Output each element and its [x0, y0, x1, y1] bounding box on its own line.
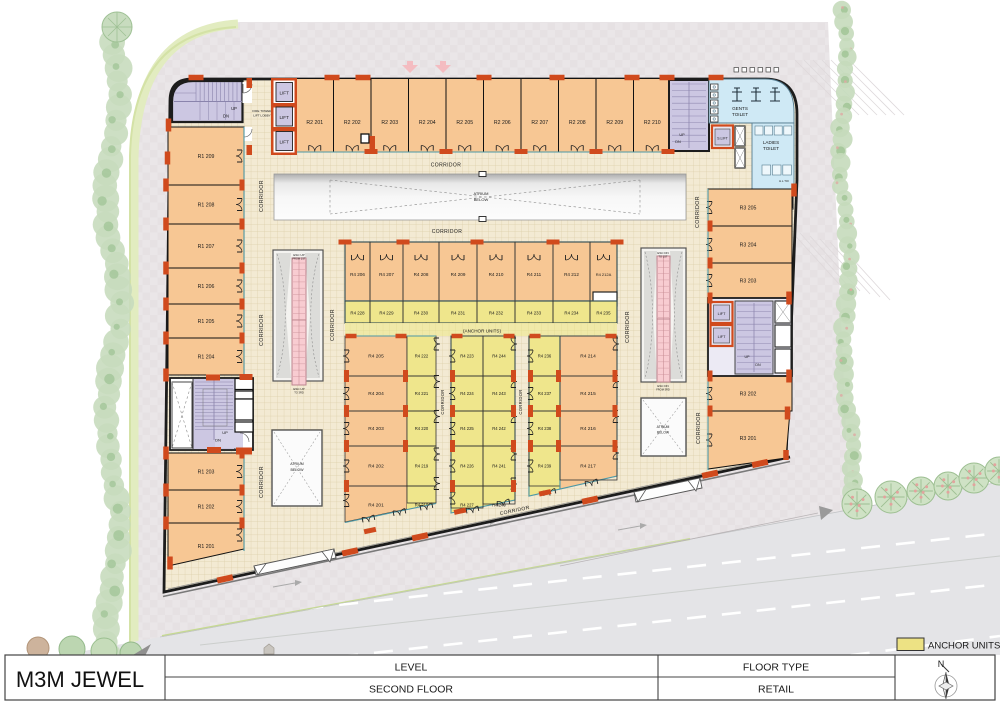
- svg-text:DN: DN: [223, 114, 229, 119]
- svg-text:R4 242: R4 242: [492, 426, 506, 431]
- svg-text:CORRIDOR: CORRIDOR: [431, 163, 461, 169]
- svg-text:TO 3RD: TO 3RD: [294, 390, 304, 394]
- svg-text:DN: DN: [675, 140, 681, 144]
- svg-text:R3 201: R3 201: [740, 436, 757, 442]
- svg-text:LIFT: LIFT: [279, 115, 289, 120]
- svg-text:R2 208: R2 208: [569, 120, 586, 126]
- svg-text:R4 234: R4 234: [564, 311, 579, 316]
- svg-text:LIFT: LIFT: [279, 140, 289, 145]
- svg-text:R4 241: R4 241: [492, 464, 506, 469]
- svg-text:R4 223: R4 223: [460, 354, 474, 359]
- svg-text:R4 228: R4 228: [350, 311, 365, 316]
- svg-text:R4 230: R4 230: [414, 311, 429, 316]
- svg-text:R4 222: R4 222: [415, 354, 429, 359]
- svg-text:R4 227: R4 227: [460, 503, 474, 508]
- svg-text:ATRIUM: ATRIUM: [657, 425, 670, 429]
- svg-text:LIFT: LIFT: [718, 312, 726, 316]
- svg-text:R4 220: R4 220: [415, 426, 429, 431]
- svg-text:CORRIDOR: CORRIDOR: [695, 196, 701, 228]
- svg-text:R2 210: R2 210: [644, 120, 661, 126]
- svg-text:R4 239: R4 239: [538, 464, 552, 469]
- svg-text:R3 202: R3 202: [740, 392, 757, 398]
- svg-text:CORRIDOR: CORRIDOR: [259, 180, 265, 212]
- svg-text:R4 214: R4 214: [580, 354, 596, 360]
- svg-text:R4 224: R4 224: [460, 391, 474, 396]
- svg-text:R4 235: R4 235: [596, 311, 611, 316]
- svg-text:R4 229: R4 229: [379, 311, 394, 316]
- svg-text:R4 221: R4 221: [415, 391, 429, 396]
- svg-text:R1 205: R1 205: [198, 319, 215, 325]
- svg-text:R4 217: R4 217: [580, 464, 596, 470]
- svg-text:UP: UP: [222, 430, 228, 435]
- svg-text:ESC UP: ESC UP: [293, 387, 304, 391]
- svg-text:BELOW: BELOW: [657, 431, 670, 435]
- svg-text:R4 212: R4 212: [564, 272, 579, 277]
- svg-text:CORRIDOR: CORRIDOR: [259, 314, 265, 346]
- svg-text:GENTS: GENTS: [732, 106, 748, 111]
- svg-text:ANCHOR UNITS: ANCHOR UNITS: [928, 641, 1000, 652]
- svg-text:R4 202: R4 202: [368, 464, 384, 470]
- svg-text:FLOOR TYPE: FLOOR TYPE: [743, 662, 809, 674]
- svg-text:BELOW: BELOW: [474, 197, 489, 202]
- svg-text:R2 207: R2 207: [531, 120, 548, 126]
- svg-text:R4 204: R4 204: [368, 391, 384, 397]
- svg-text:R4 211: R4 211: [527, 272, 542, 277]
- svg-text:M3M JEWEL: M3M JEWEL: [16, 667, 144, 692]
- svg-text:R3 204: R3 204: [740, 243, 757, 249]
- svg-text:ATRIUM: ATRIUM: [473, 191, 488, 196]
- svg-text:R4 207: R4 207: [379, 272, 394, 277]
- svg-text:R1 201: R1 201: [198, 544, 215, 550]
- svg-text:TO 1ST: TO 1ST: [658, 254, 667, 258]
- svg-text:R4 236: R4 236: [538, 354, 552, 359]
- svg-text:FROM 3RD: FROM 3RD: [656, 387, 670, 391]
- svg-text:LIFT: LIFT: [279, 91, 289, 96]
- svg-text:R4 203: R4 203: [368, 426, 384, 432]
- svg-text:BELOW: BELOW: [291, 468, 305, 472]
- svg-text:R2 201: R2 201: [306, 120, 323, 126]
- svg-text:TOILET: TOILET: [732, 112, 748, 117]
- svg-text:UP: UP: [745, 355, 751, 359]
- svg-text:R4 212A: R4 212A: [596, 272, 612, 277]
- svg-text:R4 232: R4 232: [489, 311, 504, 316]
- svg-text:R4 231: R4 231: [451, 311, 466, 316]
- svg-text:R4 210: R4 210: [489, 272, 504, 277]
- svg-text:R1 204: R1 204: [198, 355, 215, 361]
- svg-text:R4 201: R4 201: [368, 503, 384, 509]
- svg-text:R4 226: R4 226: [460, 464, 474, 469]
- svg-text:CORRIDOR: CORRIDOR: [518, 389, 523, 414]
- svg-text:RETAIL: RETAIL: [758, 684, 794, 696]
- svg-text:ESC DN: ESC DN: [657, 384, 668, 388]
- svg-text:R1 206: R1 206: [198, 284, 215, 290]
- svg-text:ESC DN: ESC DN: [657, 251, 668, 255]
- svg-text:CORRIDOR: CORRIDOR: [440, 389, 445, 414]
- svg-text:R3 205: R3 205: [740, 206, 757, 212]
- svg-text:R4 219: R4 219: [415, 464, 429, 469]
- svg-text:R4 205: R4 205: [368, 354, 384, 360]
- svg-text:R4 225: R4 225: [460, 426, 474, 431]
- svg-text:R1 208: R1 208: [198, 203, 215, 209]
- svg-text:CORRIDOR: CORRIDOR: [259, 466, 265, 498]
- svg-text:R4 238: R4 238: [538, 426, 552, 431]
- svg-text:R2 202: R2 202: [344, 120, 361, 126]
- svg-text:LEVEL: LEVEL: [395, 662, 428, 674]
- svg-text:CORRIDOR: CORRIDOR: [625, 311, 631, 343]
- svg-text:LADIES: LADIES: [763, 140, 779, 145]
- svg-text:LIFT LOBBY: LIFT LOBBY: [253, 114, 270, 118]
- svg-text:R4 206: R4 206: [350, 272, 365, 277]
- svg-text:R2 205: R2 205: [456, 120, 473, 126]
- svg-text:CORRIDOR: CORRIDOR: [432, 229, 462, 235]
- svg-text:S.LIFT: S.LIFT: [717, 137, 729, 141]
- svg-text:R3 203: R3 203: [740, 279, 757, 285]
- svg-text:R4 244: R4 244: [492, 354, 506, 359]
- svg-text:R4 209: R4 209: [451, 272, 466, 277]
- svg-text:R1 203: R1 203: [198, 470, 215, 476]
- svg-text:R2 206: R2 206: [494, 120, 511, 126]
- svg-text:R2 204: R2 204: [419, 120, 436, 126]
- svg-text:R4 237: R4 237: [538, 391, 552, 396]
- svg-text:R1 207: R1 207: [198, 244, 215, 250]
- svg-text:R2 209: R2 209: [606, 120, 623, 126]
- svg-text:FROM 1ST: FROM 1ST: [292, 256, 306, 260]
- svg-text:R4 216: R4 216: [580, 426, 596, 432]
- svg-text:R1 202: R1 202: [198, 505, 215, 511]
- svg-text:DN: DN: [755, 363, 761, 367]
- svg-text:CORRIDOR: CORRIDOR: [330, 309, 336, 341]
- svg-text:R1 209: R1 209: [198, 154, 215, 160]
- svg-text:ESC UP: ESC UP: [293, 253, 304, 257]
- svg-text:R4 215: R4 215: [580, 391, 596, 397]
- svg-text:R4 208: R4 208: [414, 272, 429, 277]
- svg-text:UP: UP: [679, 133, 685, 137]
- svg-text:LIFT: LIFT: [718, 335, 726, 339]
- svg-text:R4 243: R4 243: [492, 391, 506, 396]
- svg-text:DN: DN: [215, 438, 221, 443]
- svg-text:CORRIDOR: CORRIDOR: [696, 412, 702, 444]
- svg-text:H.L.TOI: H.L.TOI: [779, 179, 789, 183]
- svg-text:(ANCHOR UNITS): (ANCHOR UNITS): [463, 329, 501, 334]
- svg-text:TOILET: TOILET: [763, 146, 779, 151]
- svg-text:FIRE TOWER: FIRE TOWER: [252, 109, 272, 113]
- svg-text:UP: UP: [231, 106, 237, 111]
- svg-text:ATRIUM: ATRIUM: [290, 462, 304, 466]
- svg-text:SECOND FLOOR: SECOND FLOOR: [369, 684, 453, 696]
- svg-text:R2 203: R2 203: [381, 120, 398, 126]
- svg-text:R4 233: R4 233: [527, 311, 542, 316]
